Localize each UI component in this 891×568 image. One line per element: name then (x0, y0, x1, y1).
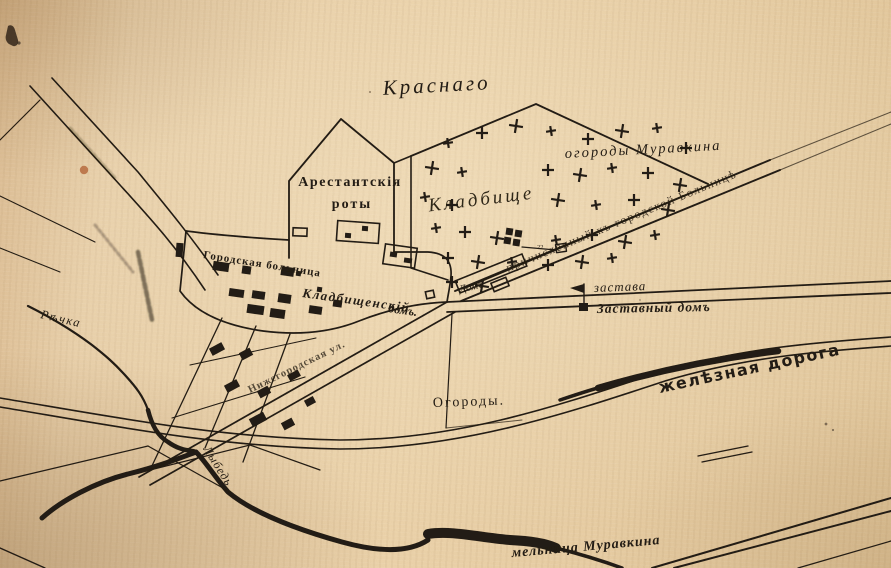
paper-grain-overlay (0, 0, 891, 568)
map-svg: Краснаго огороды Муравкина Арестантскія … (0, 0, 891, 568)
map-canvas[interactable]: Краснаго огороды Муравкина Арестантскія … (0, 0, 891, 568)
